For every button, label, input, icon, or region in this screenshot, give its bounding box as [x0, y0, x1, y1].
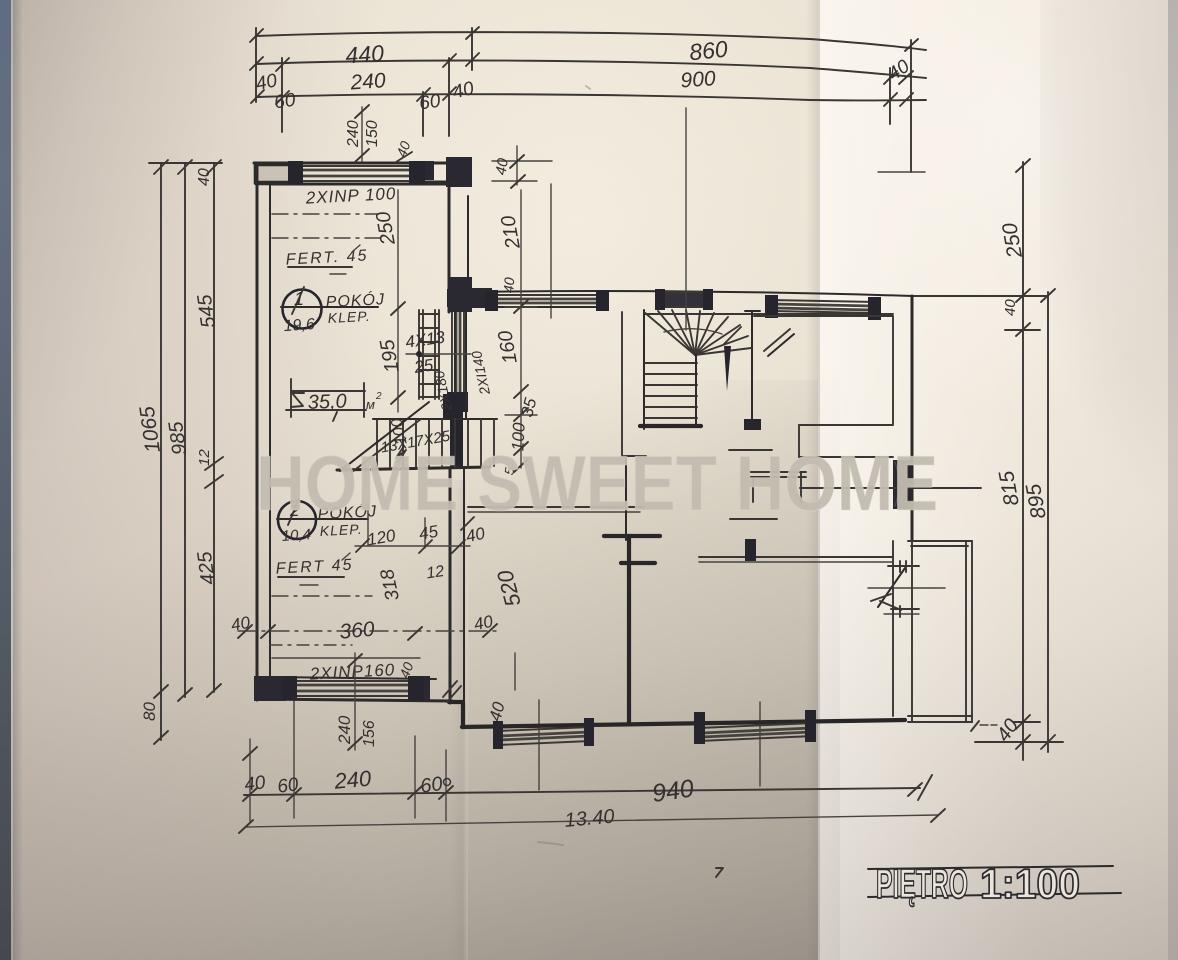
svg-text:895: 895 — [1022, 482, 1051, 521]
svg-text:19,6: 19,6 — [283, 316, 315, 335]
svg-text:985: 985 — [165, 419, 192, 456]
svg-text:40: 40 — [1002, 299, 1019, 316]
svg-text:860: 860 — [688, 35, 729, 65]
svg-text:160: 160 — [494, 329, 521, 366]
svg-text:4X13: 4X13 — [404, 327, 447, 351]
svg-text:HOME SWEET HOME: HOME SWEET HOME — [256, 439, 938, 527]
svg-text:1: 1 — [294, 289, 304, 309]
svg-text:12: 12 — [425, 563, 445, 582]
svg-text:1:100: 1:100 — [980, 860, 1080, 907]
svg-text:156: 156 — [361, 720, 378, 747]
svg-text:240: 240 — [332, 766, 373, 794]
svg-text:PIĘTRO: PIĘTRO — [876, 860, 968, 907]
svg-text:425: 425 — [194, 549, 221, 586]
svg-text:40: 40 — [450, 78, 476, 104]
svg-text:318: 318 — [377, 567, 404, 603]
svg-text:40: 40 — [884, 56, 914, 86]
svg-text:360: 360 — [339, 618, 376, 644]
svg-text:40: 40 — [472, 612, 495, 635]
svg-text:240: 240 — [349, 69, 387, 94]
svg-text:900: 900 — [680, 67, 717, 92]
svg-text:12: 12 — [196, 449, 213, 466]
svg-text:520: 520 — [492, 567, 526, 610]
svg-text:240: 240 — [335, 715, 354, 745]
svg-text:40: 40 — [500, 277, 517, 294]
svg-text:40: 40 — [492, 156, 512, 176]
svg-text:195: 195 — [376, 337, 404, 375]
svg-text:40: 40 — [393, 139, 413, 159]
svg-text:40: 40 — [243, 772, 267, 796]
svg-text:13.40: 13.40 — [564, 806, 616, 832]
svg-text:40: 40 — [230, 613, 252, 635]
svg-text:940: 940 — [650, 774, 695, 808]
svg-text:60: 60 — [276, 774, 300, 798]
svg-text:2: 2 — [375, 391, 382, 402]
svg-text:40: 40 — [485, 700, 508, 724]
svg-text:60: 60 — [419, 773, 444, 798]
svg-text:35,0: 35,0 — [307, 390, 347, 413]
svg-text:60: 60 — [273, 90, 297, 114]
svg-text:2XINP 100: 2XINP 100 — [304, 184, 396, 208]
svg-text:FERT. 45: FERT. 45 — [285, 247, 368, 268]
svg-text:80: 80 — [140, 702, 159, 721]
svg-text:60: 60 — [418, 91, 442, 115]
svg-text:40: 40 — [196, 168, 213, 186]
svg-text:150: 150 — [364, 120, 381, 147]
svg-text:KLEP.: KLEP. — [327, 308, 371, 326]
svg-text:250: 250 — [372, 210, 400, 248]
svg-text:815: 815 — [995, 469, 1024, 508]
svg-text:545: 545 — [194, 292, 221, 329]
svg-text:240: 240 — [345, 120, 362, 148]
svg-text:10,4: 10,4 — [281, 526, 311, 545]
svg-text:2XI140: 2XI140 — [468, 349, 493, 397]
svg-text:м: м — [366, 397, 375, 412]
svg-text:440: 440 — [345, 40, 385, 69]
